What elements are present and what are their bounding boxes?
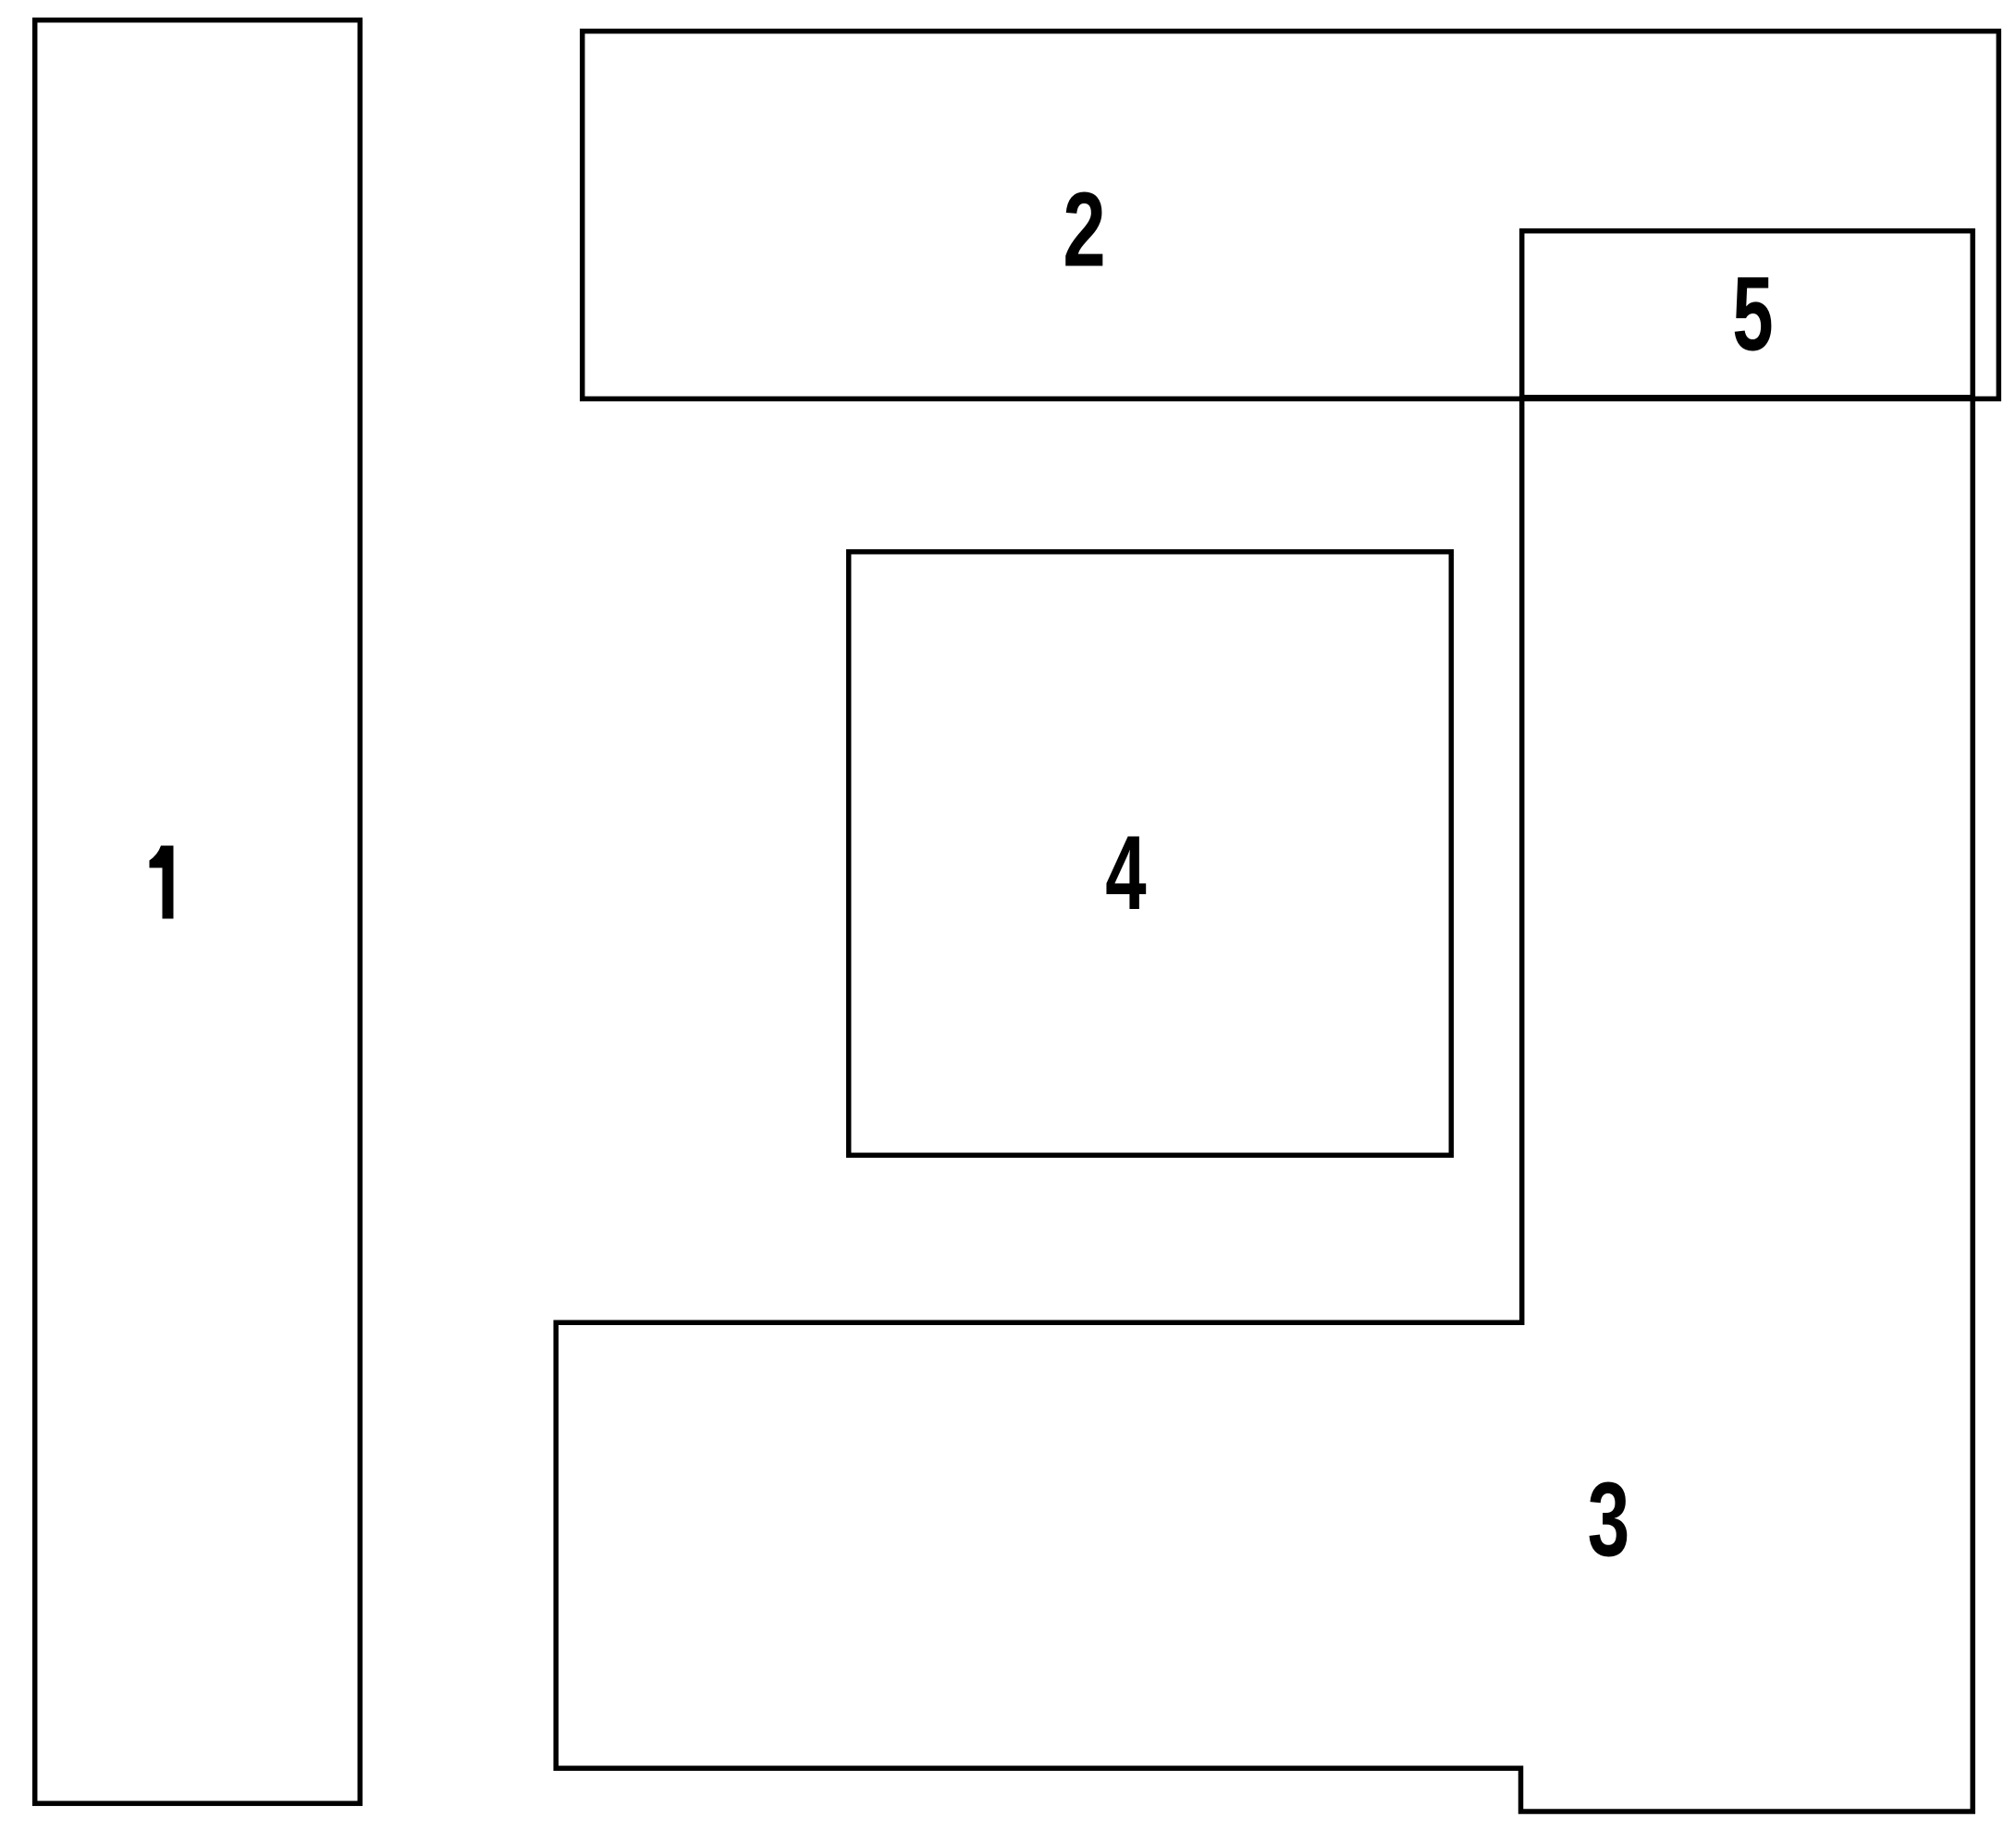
svg-text:4: 4 [1105, 814, 1147, 931]
svg-text:2: 2 [1063, 172, 1105, 289]
svg-text:3: 3 [1588, 1461, 1630, 1578]
svg-text:5: 5 [1732, 254, 1773, 372]
